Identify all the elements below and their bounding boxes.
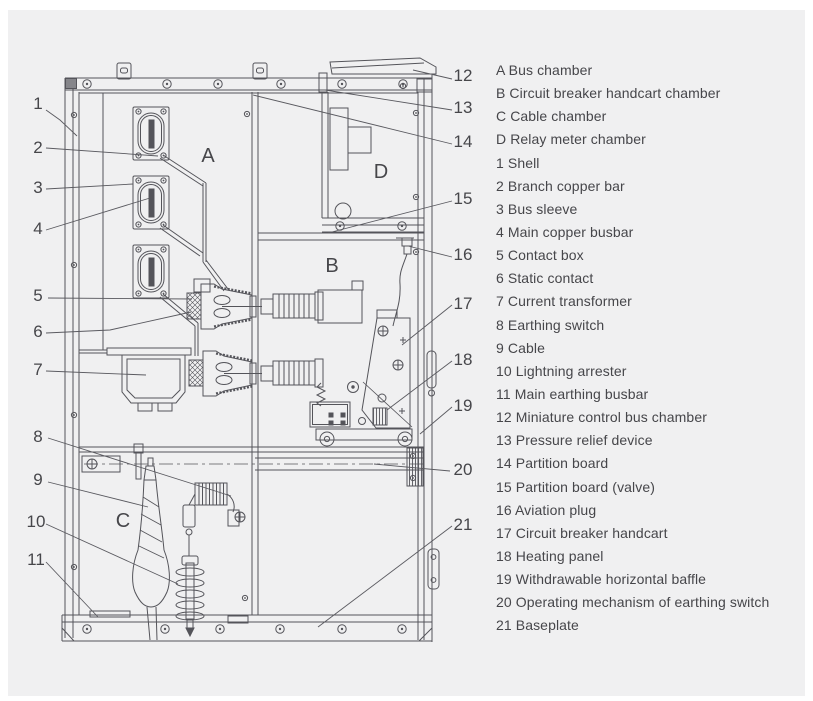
contact-box-upper: [187, 284, 262, 329]
switchgear-diagram-page: 1 2 3 4 5 6 7 8 9 10 11 12 13 14 15 16 1…: [0, 0, 813, 701]
callout-9: 9: [33, 470, 42, 489]
callout-14: 14: [454, 132, 473, 151]
callout-20: 20: [454, 460, 473, 479]
legend-item: D Relay meter chamber: [496, 128, 806, 151]
earthing-switch-blade: [134, 444, 143, 479]
callout-6: 6: [33, 322, 42, 341]
legend-item: 10 Lightning arrester: [496, 360, 806, 383]
callout-5: 5: [33, 286, 42, 305]
callout-10: 10: [27, 512, 46, 531]
main-earthing-busbar: [90, 611, 130, 617]
legend-item: 17 Circuit breaker handcart: [496, 522, 806, 545]
legend-item: A Bus chamber: [496, 59, 806, 82]
legend-item: 11 Main earthing busbar: [496, 383, 806, 406]
callout-3: 3: [33, 178, 42, 197]
bus-sleeve-2: [133, 176, 169, 229]
callout-17: 17: [454, 294, 473, 313]
chamber-label-c: C: [116, 510, 130, 532]
relay-chamber: [330, 108, 371, 219]
bus-sleeve-3: [133, 245, 169, 298]
cable-chamber: [90, 458, 248, 640]
legend-item: 19 Withdrawable horizontal baffle: [496, 568, 806, 591]
door-hinge: [428, 549, 439, 589]
chamber-label-a: A: [201, 145, 215, 167]
current-transformer: [79, 348, 191, 411]
cable: [133, 458, 170, 640]
earthing-switch-mechanism: [183, 483, 245, 556]
legend-item: C Cable chamber: [496, 105, 806, 128]
heating-panel: [373, 408, 387, 425]
chamber-label-b: B: [325, 255, 338, 277]
legend-item: 16 Aviation plug: [496, 499, 806, 522]
callout-16: 16: [454, 245, 473, 264]
callout-15: 15: [454, 189, 473, 208]
legend-item: 4 Main copper busbar: [496, 221, 806, 244]
callout-13: 13: [454, 98, 473, 117]
legend-item: 5 Contact box: [496, 244, 806, 267]
legend-item: 9 Cable: [496, 337, 806, 360]
callout-11: 11: [27, 550, 45, 569]
cabinet-shell: [62, 58, 439, 642]
legend-item: 2 Branch copper bar: [496, 175, 806, 198]
legend-item: 15 Partition board (valve): [496, 476, 806, 499]
chamber-label-d: D: [374, 161, 388, 183]
legend-item: 6 Static contact: [496, 267, 806, 290]
callout-21: 21: [454, 515, 473, 534]
contact-box-lower: [189, 351, 262, 396]
legend-item: 21 Baseplate: [496, 614, 806, 637]
legend-item: 13 Pressure relief device: [496, 429, 806, 452]
legend-item: 18 Heating panel: [496, 545, 806, 568]
bus-sleeve-1: [133, 107, 169, 160]
legend-item: 12 Miniature control bus chamber: [496, 406, 806, 429]
breaker-arm-lower: [261, 359, 323, 387]
callout-4: 4: [33, 219, 42, 238]
legend-item: 8 Earthing switch: [496, 314, 806, 337]
callout-18: 18: [454, 350, 473, 369]
lightning-arrester: [176, 556, 204, 636]
callout-12: 12: [454, 66, 473, 85]
callout-8: 8: [33, 427, 42, 446]
callout-7: 7: [33, 360, 42, 379]
circuit-breaker-handcart: [310, 281, 412, 446]
callout-1: 1: [33, 94, 42, 113]
legend: A Bus chamber B Circuit breaker handcart…: [496, 59, 806, 638]
breaker-arm-upper: [261, 292, 323, 320]
callout-19: 19: [454, 396, 473, 415]
legend-item: 14 Partition board: [496, 452, 806, 475]
legend-item: B Circuit breaker handcart chamber: [496, 82, 806, 105]
aviation-plug: [393, 238, 414, 326]
callout-2: 2: [33, 138, 42, 157]
legend-item: 1 Shell: [496, 152, 806, 175]
legend-item: 7 Current transformer: [496, 290, 806, 313]
legend-item: 20 Operating mechanism of earthing switc…: [496, 591, 806, 614]
legend-item: 3 Bus sleeve: [496, 198, 806, 221]
